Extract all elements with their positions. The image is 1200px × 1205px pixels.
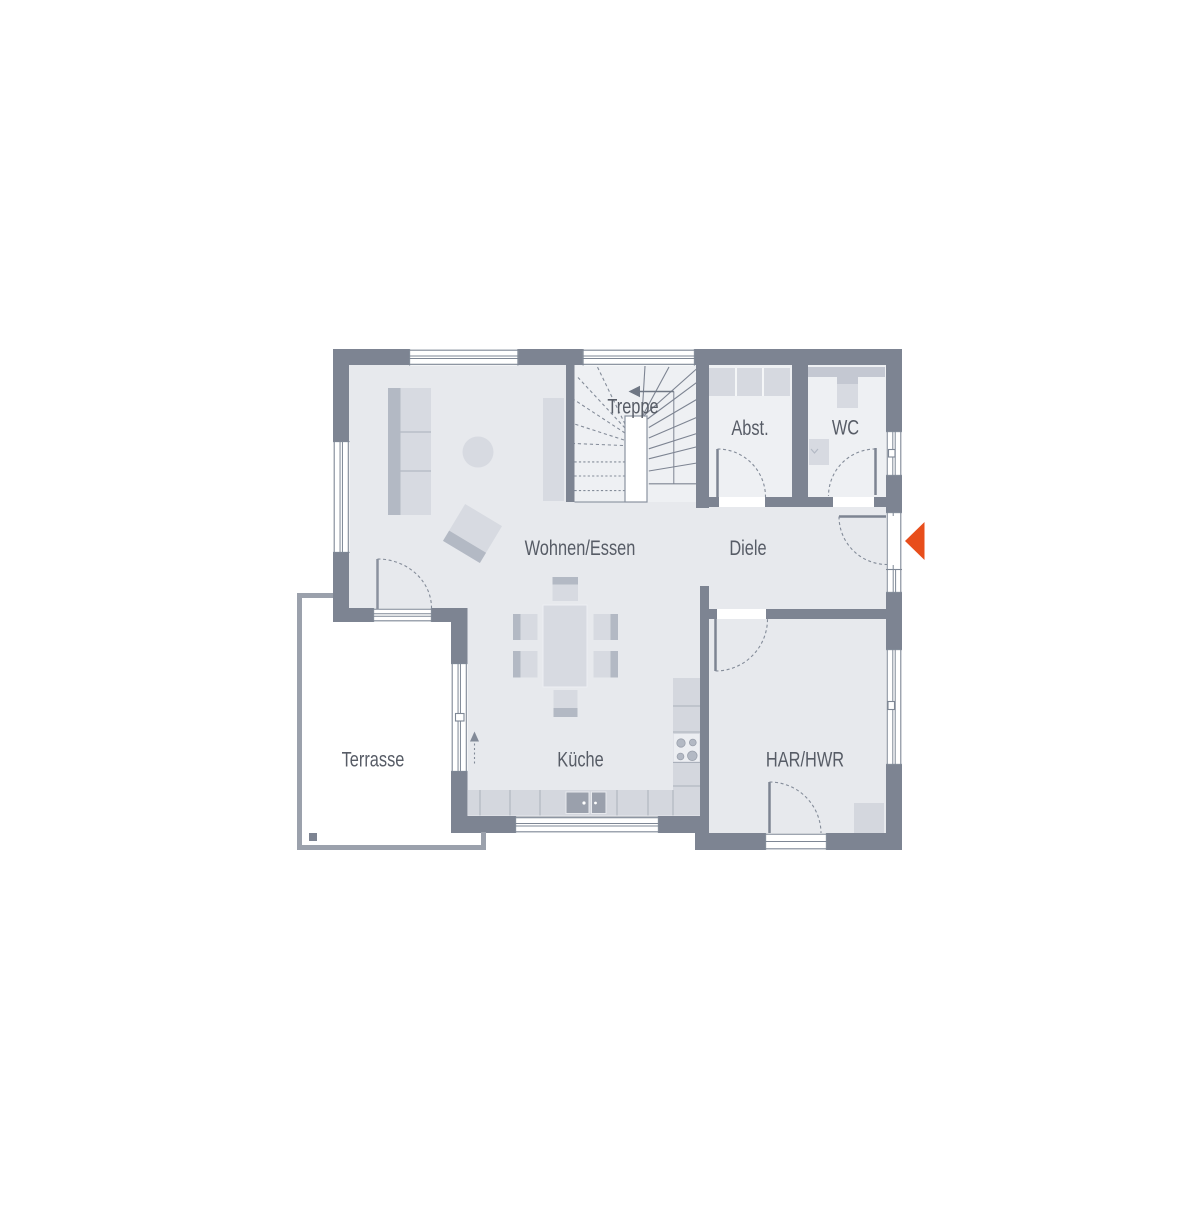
svg-text:Diele: Diele <box>729 536 766 559</box>
svg-text:Abst.: Abst. <box>731 416 768 439</box>
svg-text:Treppe: Treppe <box>607 395 658 418</box>
svg-text:WC: WC <box>832 416 859 439</box>
svg-text:Wohnen/Essen: Wohnen/Essen <box>525 536 636 559</box>
svg-text:Terrasse: Terrasse <box>342 748 405 771</box>
svg-text:HAR/HWR: HAR/HWR <box>766 748 844 771</box>
svg-text:Küche: Küche <box>557 748 603 771</box>
